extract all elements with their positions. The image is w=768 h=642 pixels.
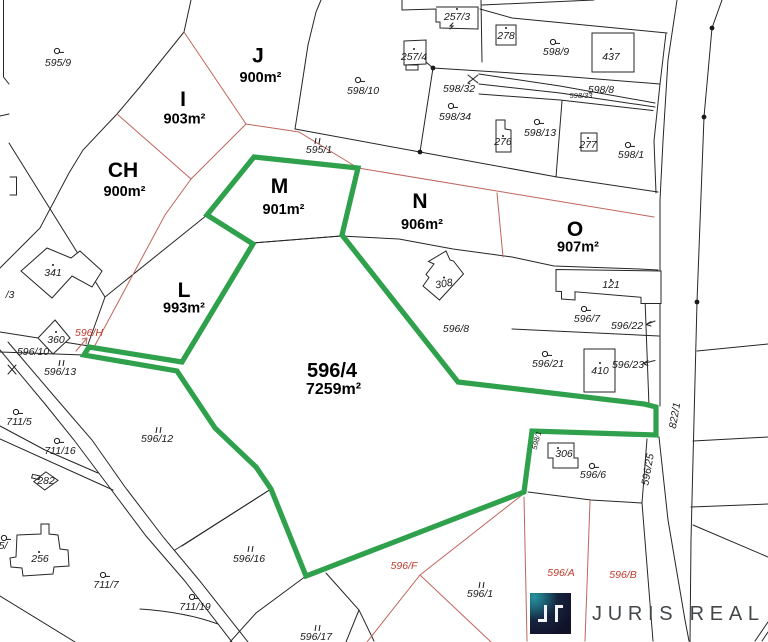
- svg-text:598/33: 598/33: [570, 91, 594, 100]
- svg-text:596/F: 596/F: [391, 560, 418, 572]
- svg-text:711/19: 711/19: [179, 601, 210, 613]
- svg-text:596/6: 596/6: [580, 469, 606, 481]
- svg-text:598/32: 598/32: [443, 83, 475, 95]
- svg-text:L: L: [178, 279, 191, 302]
- svg-text:596/10: 596/10: [17, 346, 49, 358]
- svg-text:596/13: 596/13: [44, 366, 76, 378]
- svg-text:306: 306: [555, 448, 573, 460]
- svg-text:282: 282: [36, 475, 55, 487]
- svg-text:7259m²: 7259m²: [306, 381, 361, 398]
- svg-text:598/1: 598/1: [618, 149, 644, 161]
- svg-text:598/34: 598/34: [439, 111, 471, 123]
- svg-text:596/4: 596/4: [307, 360, 358, 382]
- svg-text:JURIS REAL: JURIS REAL: [592, 603, 765, 625]
- svg-text:5/: 5/: [0, 540, 8, 552]
- svg-text:711/7: 711/7: [93, 579, 120, 591]
- svg-text:598/13: 598/13: [524, 127, 556, 139]
- svg-text:276: 276: [493, 136, 512, 148]
- svg-text:711/16: 711/16: [44, 445, 75, 457]
- svg-text:907m²: 907m²: [557, 240, 599, 256]
- svg-text:410: 410: [591, 365, 609, 377]
- svg-text:596/1: 596/1: [467, 588, 493, 600]
- svg-text:277: 277: [578, 139, 598, 151]
- svg-text:711/5: 711/5: [6, 416, 32, 428]
- svg-text:596/A: 596/A: [547, 567, 574, 579]
- svg-text:993m²: 993m²: [163, 301, 205, 317]
- svg-text:M: M: [271, 175, 289, 198]
- svg-text:596/17: 596/17: [300, 631, 333, 642]
- svg-text:596/H: 596/H: [75, 327, 103, 339]
- svg-text:901m²: 901m²: [263, 202, 305, 218]
- svg-text:257/4: 257/4: [400, 51, 427, 63]
- svg-text:906m²: 906m²: [401, 217, 443, 233]
- svg-text:257/3: 257/3: [443, 11, 470, 23]
- svg-text:360: 360: [47, 334, 65, 346]
- svg-text:596/8: 596/8: [443, 323, 469, 335]
- svg-text:595/9: 595/9: [45, 57, 71, 69]
- svg-text:596/22: 596/22: [611, 320, 643, 332]
- svg-text:J: J: [252, 45, 264, 68]
- svg-text:900m²: 900m²: [104, 184, 146, 200]
- svg-text:278: 278: [496, 30, 515, 42]
- svg-text:596/B: 596/B: [609, 569, 636, 581]
- svg-text:596/23: 596/23: [612, 359, 644, 371]
- svg-text:O: O: [567, 218, 583, 241]
- svg-text:/3: /3: [5, 289, 15, 301]
- svg-text:256: 256: [30, 553, 49, 565]
- svg-text:598/9: 598/9: [543, 46, 569, 58]
- svg-text:595/1: 595/1: [306, 144, 332, 156]
- svg-text:596/16: 596/16: [233, 553, 265, 565]
- svg-text:596/7: 596/7: [574, 313, 601, 325]
- svg-text:596/21: 596/21: [532, 358, 564, 370]
- svg-text:598/10: 598/10: [347, 85, 379, 97]
- svg-text:I: I: [180, 88, 186, 111]
- svg-text:903m²: 903m²: [164, 112, 206, 128]
- svg-text:341: 341: [44, 267, 62, 279]
- svg-text:N: N: [412, 190, 427, 213]
- svg-text:CH: CH: [108, 159, 138, 182]
- svg-text:596/12: 596/12: [141, 433, 173, 445]
- svg-text:900m²: 900m²: [240, 70, 282, 86]
- svg-text:437: 437: [602, 51, 621, 63]
